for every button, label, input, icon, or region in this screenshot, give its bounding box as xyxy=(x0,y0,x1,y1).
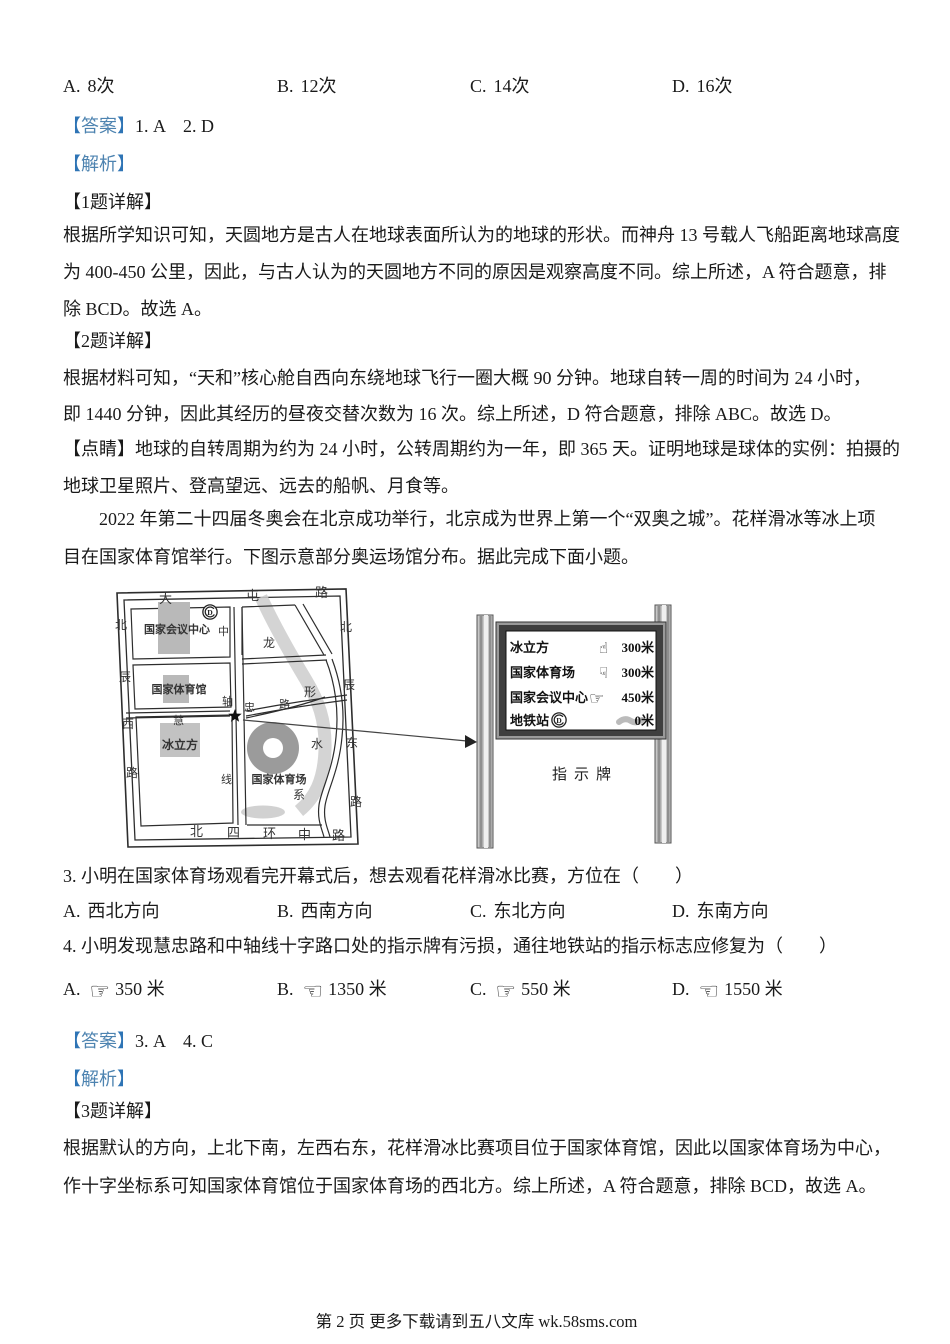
detail2-header: 【2题详解】 xyxy=(63,327,162,353)
option-b: B.12次 xyxy=(277,72,337,98)
option-text: 东南方向 xyxy=(697,901,769,921)
label-national-gym: 国家体育馆 xyxy=(152,682,207,696)
sign-metro-icon xyxy=(552,713,566,727)
option-key: B. xyxy=(277,76,294,96)
hand-left-icon: ☜ xyxy=(303,979,324,1005)
road-beicheneast-char: 辰 xyxy=(343,678,355,692)
label-national-stadium: 国家体育场 xyxy=(252,772,307,786)
option-text: 1550 米 xyxy=(724,979,783,999)
option-text: 8次 xyxy=(88,76,115,96)
stadium-ring-hole xyxy=(263,738,283,758)
intro-line1: 2022 年第二十四届冬奥会在北京成功举行，北京成为世界上第一个“双奥之城”。花… xyxy=(63,505,875,531)
paragraph2-line1: 根据材料可知，“天和”核心舱自西向东绕地球飞行一圈大概 90 分钟。地球自转一周… xyxy=(63,364,871,390)
bracket-close: 】 xyxy=(117,1031,135,1051)
option-text: 14次 xyxy=(494,76,530,96)
option-key: D. xyxy=(672,76,690,96)
option-text: 350 米 xyxy=(115,979,165,999)
intro-line2: 目在国家体育馆举行。下图示意部分奥运场馆分布。据此完成下面小题。 xyxy=(63,543,639,569)
road-sihuan-char: 北 xyxy=(190,824,203,839)
bracket-close: 】 xyxy=(117,116,135,136)
option-key: C. xyxy=(470,901,487,921)
bracket-close: 】 xyxy=(117,154,135,174)
signboard-left-post xyxy=(477,615,493,848)
sign-row-label: 地铁站 xyxy=(510,713,549,728)
detail1-header: 【1题详解】 xyxy=(63,188,162,214)
option-c: C.东北方向 xyxy=(470,897,566,923)
road-beicheneast-char: 北 xyxy=(340,620,352,634)
jiexi-line-1: 【解析】 xyxy=(63,150,135,176)
label-ice-cube: 冰立方 xyxy=(162,737,198,752)
answer-line-q34: 【答案】3. A 4. C xyxy=(63,1027,213,1053)
question3-text: 3. 小明在国家体育场观看完开幕式后，想去观看花样滑冰比赛，方位在（ ） xyxy=(63,862,693,888)
dianjing-line1: 【点睛】地球的自转周期为约为 24 小时，公转周期约为一年，即 365 天。证明… xyxy=(63,435,900,461)
road-beicheneast-char: 东 xyxy=(346,736,358,750)
hand-left-icon: ☜ xyxy=(699,979,720,1005)
road-sihuan-char: 四 xyxy=(227,825,240,840)
jiexi-line-2: 【解析】 xyxy=(63,1065,135,1091)
road-sihuan-char: 中 xyxy=(298,827,311,842)
river-char: 形 xyxy=(304,685,316,699)
option-b: B.☜1350 米 xyxy=(277,975,387,1005)
answer-value: 1. A 2. D xyxy=(135,116,214,136)
huizhong-char: 路 xyxy=(279,698,290,711)
option-key: A. xyxy=(63,76,81,96)
label-conference-center: 国家会议中心 xyxy=(144,622,210,636)
option-d: D.16次 xyxy=(672,72,733,98)
road-datun-char: 屯 xyxy=(246,588,259,603)
page-content: A.8次 B.12次 C.14次 D.16次 【答案】1. A 2. D 【解析… xyxy=(63,0,890,1344)
road-beichenwest-char: 路 xyxy=(126,765,138,780)
option-text: 550 米 xyxy=(521,979,571,999)
road-datun-char: 大 xyxy=(159,591,172,606)
answer-word: 答案 xyxy=(81,116,117,136)
sign-row-distance: 0米 xyxy=(634,713,655,728)
answer-word: 答案 xyxy=(81,1031,117,1051)
river-char: 系 xyxy=(293,788,305,802)
option-key: A. xyxy=(63,901,81,921)
road-beichenwest-char: 辰 xyxy=(119,670,131,684)
option-b: B.西南方向 xyxy=(277,897,373,923)
jiexi-word: 解析 xyxy=(81,154,117,174)
detail3-header: 【3题详解】 xyxy=(63,1097,162,1123)
road-sihuan-char: 环 xyxy=(263,826,276,841)
bracket-open: 【 xyxy=(63,1031,81,1051)
olympic-venues-figure: D xyxy=(63,585,893,853)
paragraph2-line2: 即 1440 分钟，因此其经历的昼夜交替次数为 16 次。综上所述，D 符合题意… xyxy=(63,400,842,426)
paragraph1-line2: 为 400-450 公里，因此，与古人认为的天圆地方不同的原因是观察高度不同。综… xyxy=(63,258,887,284)
central-axis-char: 线 xyxy=(221,772,232,786)
central-axis-char: 轴 xyxy=(222,694,233,708)
option-key: D. xyxy=(672,901,690,921)
sign-row-distance: 450米 xyxy=(621,690,655,705)
road-beicheneast-char: 路 xyxy=(350,794,362,809)
answer-value: 3. A 4. C xyxy=(135,1031,213,1051)
road-sihuan-char: 路 xyxy=(332,828,345,843)
option-key: C. xyxy=(470,979,487,999)
map-metro-icon xyxy=(203,605,217,619)
hand-right-icon: ☞ xyxy=(496,979,517,1005)
sign-row-label: 国家体育场 xyxy=(510,665,575,680)
paragraph1-line1: 根据所学知识可知，天圆地方是古人在地球表面所认为的地球的形状。而神舟 13 号载… xyxy=(63,221,900,247)
option-d: D.☜1550 米 xyxy=(672,975,783,1005)
hand-down-icon: ☟ xyxy=(599,664,608,682)
option-text: 1350 米 xyxy=(328,979,387,999)
option-text: 西北方向 xyxy=(88,901,160,921)
bracket-open: 【 xyxy=(63,154,81,174)
road-datun-char: 路 xyxy=(315,585,328,600)
option-a: A.☞350 米 xyxy=(63,975,165,1005)
option-a: A.西北方向 xyxy=(63,897,160,923)
answer-line-q12: 【答案】1. A 2. D xyxy=(63,112,214,138)
pond xyxy=(241,806,285,819)
central-axis-char: 中 xyxy=(218,625,229,638)
road-beichenwest-char: 北 xyxy=(115,618,127,632)
page-footer: 第 2 页 更多下载请到五八文库 wk.58sms.com xyxy=(63,1308,890,1332)
option-d: D.东南方向 xyxy=(672,897,769,923)
paragraph3-line2: 作十字坐标系可知国家体育馆位于国家体育场的西北方。综上所述，A 符合题意，排除 … xyxy=(63,1172,877,1198)
option-key: D. xyxy=(672,979,690,999)
signboard-caption: 指示牌 xyxy=(552,766,618,783)
signboard: 冰立方 ☝ 300米 国家体育场 ☟ 300米 国家会议中心 ☞ 450米 地铁… xyxy=(477,605,671,848)
option-text: 16次 xyxy=(697,76,733,96)
road-beichenwest-char: 西 xyxy=(122,717,134,731)
jiexi-word: 解析 xyxy=(81,1069,117,1089)
option-a: A.8次 xyxy=(63,72,115,98)
paragraph1-line3: 除 BCD。故选 A。 xyxy=(63,295,212,321)
question4-text: 4. 小明发现慧忠路和中轴线十字路口处的指示牌有污损，通往地铁站的指示标志应修复… xyxy=(63,932,837,958)
option-text: 西南方向 xyxy=(301,901,373,921)
venues-map: 大 屯 路 北 辰 西 路 北 辰 东 路 北 四 环 中 路 中 轴 线 慧 … xyxy=(115,585,362,847)
river-char: 水 xyxy=(311,737,323,751)
bracket-open: 【 xyxy=(63,1069,81,1089)
option-key: C. xyxy=(470,76,487,96)
river-char: 龙 xyxy=(263,636,275,650)
sign-row-label: 国家会议中心 xyxy=(510,690,588,705)
hand-right-icon: ☞ xyxy=(90,979,111,1005)
hand-right-icon: ☞ xyxy=(589,689,604,709)
option-text: 12次 xyxy=(301,76,337,96)
sign-row-label: 冰立方 xyxy=(510,640,549,655)
hand-up-icon: ☝ xyxy=(599,639,608,657)
option-key: B. xyxy=(277,901,294,921)
option-key: A. xyxy=(63,979,81,999)
document-page: A.8次 B.12次 C.14次 D.16次 【答案】1. A 2. D 【解析… xyxy=(0,0,950,1344)
bracket-close: 】 xyxy=(117,1069,135,1089)
option-key: B. xyxy=(277,979,294,999)
pointer-arrowhead xyxy=(465,735,477,748)
option-text: 东北方向 xyxy=(494,901,566,921)
sign-row-distance: 300米 xyxy=(621,640,655,655)
option-c: C.14次 xyxy=(470,72,530,98)
bracket-open: 【 xyxy=(63,116,81,136)
huizhong-char: 忠 xyxy=(244,701,255,714)
paragraph3-line1: 根据默认的方向，上北下南，左西右东，花样滑冰比赛项目位于国家体育馆，因此以国家体… xyxy=(63,1134,891,1160)
sign-row-distance: 300米 xyxy=(621,665,655,680)
huizhong-char: 慧 xyxy=(173,713,184,727)
dianjing-line2: 地球卫星照片、登高望远、远去的船帆、月食等。 xyxy=(63,472,459,498)
option-c: C.☞550 米 xyxy=(470,975,571,1005)
